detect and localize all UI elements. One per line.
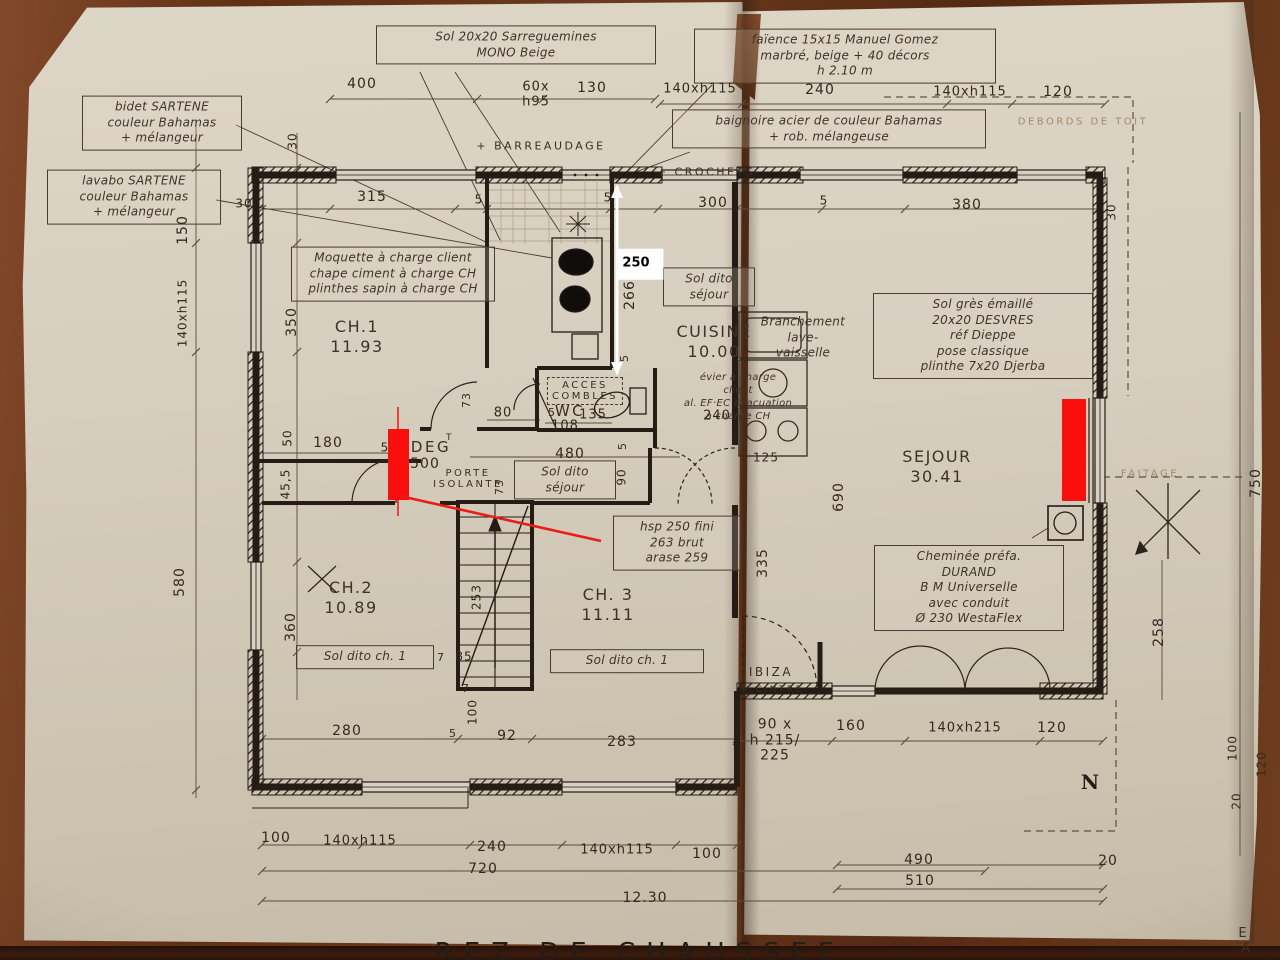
dimension-label: 720	[468, 862, 498, 878]
dimension-label: 7	[437, 652, 445, 664]
dimension-label: 100	[261, 831, 291, 847]
note-sol-dito-ch3: Sol dito ch. 1	[550, 649, 704, 673]
dimension-label: 240	[477, 840, 507, 856]
dimension-label: 7	[462, 683, 470, 695]
dimension-label: 150	[176, 215, 192, 245]
dimension-label: 490	[904, 853, 934, 869]
dimension-label: 90 x h 215/ 225	[750, 717, 801, 764]
note-moquette: Moquette à charge client chape ciment à …	[291, 247, 495, 302]
dimension-label: 300	[698, 196, 728, 212]
dimension-label: 90	[615, 468, 628, 485]
dimension-label: 80	[494, 407, 513, 422]
dimension-label: 5	[820, 194, 829, 207]
dimension-label: 258	[1152, 617, 1168, 647]
dimension-label: 5	[604, 191, 613, 204]
dimension-label: 135	[579, 409, 607, 424]
dimension-label: 20	[1230, 792, 1243, 809]
dimension-label: 400	[347, 77, 377, 93]
dimension-label: 45,5	[279, 469, 292, 500]
note-faitage: FAITAGE	[1121, 469, 1179, 480]
dimension-label: 240	[703, 410, 731, 425]
dimension-label: 30	[286, 132, 299, 149]
dimension-label: 510	[905, 874, 935, 890]
note-sol-dito-sejour-deg: Sol dito séjour	[514, 460, 616, 499]
note-sol-sarreguemines: Sol 20x20 Sarreguemines MONO Beige	[376, 25, 656, 64]
dimension-label: 125	[753, 451, 779, 464]
scanned-floor-plan-photo: Sol 20x20 Sarreguemines MONO Beigebidet …	[0, 0, 1280, 960]
note-acces-combles: ACCES COMBLES	[547, 377, 623, 405]
dimension-label: 108	[551, 420, 579, 435]
note-sol-gres: Sol grès émaillé 20x20 DESVRES réf Diepp…	[873, 293, 1093, 379]
dimension-label: 283	[607, 735, 637, 751]
room-cuisine: CUISINE 10.00	[676, 322, 751, 362]
note-faience: faïence 15x15 Manuel Gomez marbré, beige…	[694, 29, 996, 84]
dimension-label: h95	[522, 96, 550, 111]
note-cheminee: Cheminée préfa. DURAND B M Universelle a…	[874, 545, 1064, 631]
dimension-label: 5	[617, 442, 629, 450]
note-baignoire: baignoire acier de couleur Bahamas + rob…	[672, 109, 986, 148]
note-barreaudage: + BARREAUDAGE	[476, 140, 605, 153]
north-indicator: N	[1081, 770, 1099, 794]
dimension-label: 120	[1255, 751, 1268, 777]
dimension-label: 130	[577, 81, 607, 97]
dimension-label: 92	[497, 729, 517, 745]
dimension-label: 5	[548, 407, 556, 419]
room-ch2: CH.2 10.89	[324, 578, 377, 618]
dimension-label: 140xh115	[933, 86, 1007, 101]
dimension-label: 100	[692, 847, 722, 863]
room-deg-sup: T	[446, 433, 454, 443]
dimension-label: 350	[285, 307, 301, 337]
dimension-label: 5	[381, 441, 390, 454]
drawing-title: REZ DE CHAUSSEE	[435, 938, 846, 960]
dimension-label: 140xh115	[663, 83, 737, 98]
dimension-label: 380	[952, 198, 982, 214]
note-ibiza: IBIZA	[749, 665, 793, 679]
note-evier: évier à charge client al. EF·EC évacuati…	[684, 371, 792, 423]
note-lavabo: lavabo SARTENE couleur Bahamas + mélange…	[47, 170, 221, 225]
dimension-label: 160	[836, 719, 866, 735]
note-hauteurs: hsp 250 fini 263 brut arase 259	[613, 516, 741, 571]
room-ch3: CH. 3 11.11	[581, 585, 634, 625]
measurement-tag-250: 250	[616, 249, 663, 280]
dimension-label: 360	[284, 612, 300, 642]
dimension-label: 140xh115	[323, 835, 397, 850]
dimension-label: 240	[805, 83, 835, 99]
note-crochets: + CROCHETS	[657, 166, 755, 179]
note-lave-vaisselle: Branchement lave- vaisselle	[761, 315, 845, 362]
dimension-label: 120	[1043, 85, 1073, 101]
dimension-label: 500	[410, 457, 440, 473]
dimension-label: 315	[357, 190, 387, 206]
dimension-label: 73	[494, 479, 506, 495]
dimension-label: 50	[281, 429, 294, 446]
dimension-label: 5	[619, 354, 631, 362]
dimension-label: 30	[235, 197, 252, 210]
dimension-label: 253	[470, 584, 483, 610]
dimension-label: 100	[1226, 735, 1239, 761]
dimension-label: 140xh115	[580, 844, 654, 859]
dimension-label: 690	[832, 482, 848, 512]
room-sejour: SEJOUR 30.41	[902, 447, 971, 487]
room-ch1: CH.1 11.93	[330, 317, 383, 357]
dimension-label: 750	[1249, 468, 1265, 498]
dimension-label: 12.30	[622, 891, 667, 907]
dimension-label: 30	[1105, 203, 1118, 220]
dimension-label: 20	[1098, 854, 1118, 870]
note-bidet: bidet SARTENE couleur Bahamas + mélangeu…	[82, 96, 242, 151]
note-cintre: + CINTRE	[740, 685, 804, 695]
dimension-label: 280	[332, 724, 362, 740]
dimension-label: 60x	[522, 81, 549, 96]
dimension-label: 73	[461, 392, 473, 408]
dimension-label: 5	[449, 728, 457, 740]
dimension-label: 180	[313, 436, 343, 452]
dimension-label: 480	[555, 447, 585, 463]
dimension-label: 100	[466, 699, 479, 725]
dimension-label: 335	[756, 548, 772, 578]
note-debords-de-toit: DEBORDS DE TOIT	[1018, 117, 1148, 128]
dimension-label: 140xh115	[176, 279, 189, 348]
dimension-label: 580	[173, 567, 189, 597]
label-layer: Sol 20x20 Sarreguemines MONO Beigebidet …	[0, 0, 1280, 960]
dimension-label: 266	[623, 280, 639, 310]
dimension-label: 85	[455, 650, 472, 663]
corner-initials: E. A	[1231, 926, 1264, 956]
note-sol-dito-sejour-cuisine: Sol dito séjour	[663, 267, 755, 306]
note-sol-dito-ch2: Sol dito ch. 1	[296, 645, 434, 669]
dimension-label: 5	[475, 193, 484, 206]
dimension-label: 120	[1037, 721, 1067, 737]
dimension-label: 140xh215	[928, 722, 1002, 737]
